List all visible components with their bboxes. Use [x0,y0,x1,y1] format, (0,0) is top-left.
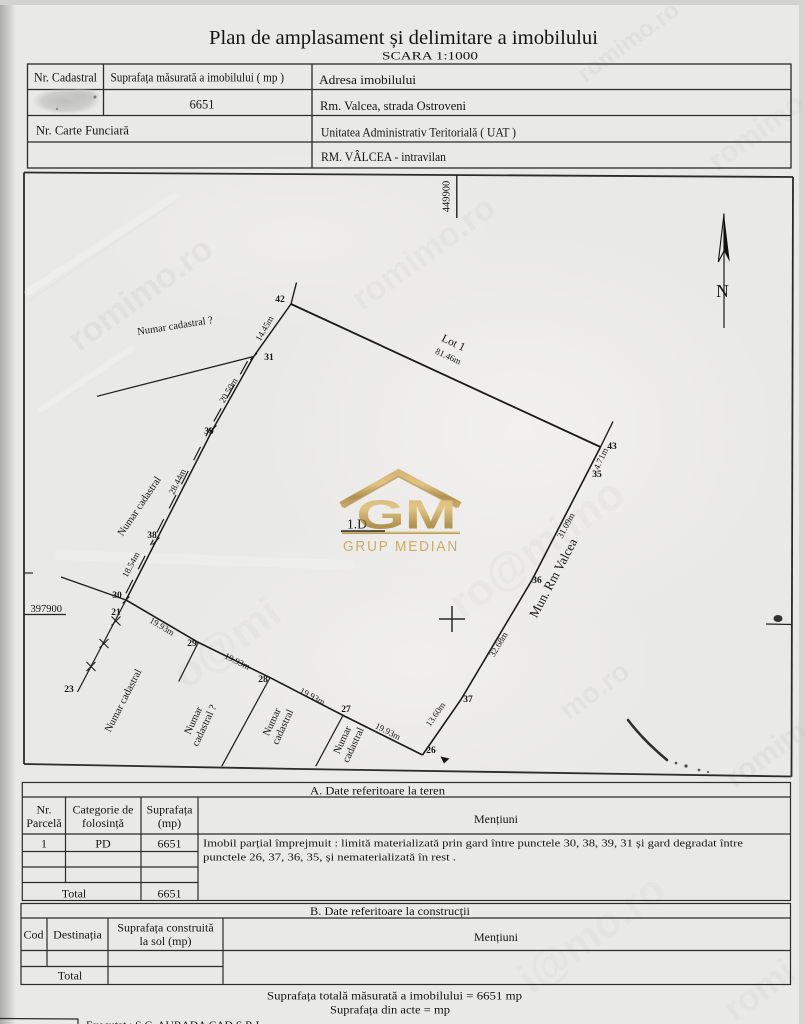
svg-text:Total: Total [58,969,83,983]
svg-text:39: 39 [204,427,214,437]
svg-text:A. Date referitoare la teren: A. Date referitoare la teren [310,784,445,798]
svg-text:26: 26 [426,746,436,756]
svg-text:PD: PD [95,837,111,851]
svg-text:6651: 6651 [158,837,182,851]
svg-text:Imobil parțial împrejmuit : li: Imobil parțial împrejmuit : limită mater… [203,838,743,850]
svg-text:Suprafața totală măsurată a im: Suprafața totală măsurată a imobilului =… [267,991,522,1003]
svg-text:Executat : S.C. AURADA CAD S.R: Executat : S.C. AURADA CAD S.R.L. [86,1020,266,1024]
svg-text:37: 37 [463,695,473,705]
svg-text:397900: 397900 [31,604,63,615]
svg-text:28: 28 [258,675,268,685]
svg-text:Suprafața măsurată a imobilulu: Suprafața măsurată a imobilului ( mp ) [111,71,285,85]
svg-text:folosință: folosință [82,816,125,830]
svg-text:Nr. Carte Funciară: Nr. Carte Funciară [36,124,129,138]
svg-text:6651: 6651 [158,887,182,901]
svg-text:GM: GM [356,492,456,538]
svg-text:Suprafața construită: Suprafața construită [117,921,214,935]
svg-text:30: 30 [112,591,122,601]
svg-text:29: 29 [187,639,197,649]
svg-text:Plan de amplasament și delimit: Plan de amplasament și delimitare a imob… [209,27,598,49]
svg-text:38: 38 [147,531,157,541]
svg-text:Rm. Valcea, strada Ostroveni: Rm. Valcea, strada Ostroveni [320,99,467,113]
svg-text:23: 23 [64,685,74,695]
svg-text:Suprafața din acte = mp: Suprafața din acte = mp [330,1005,450,1017]
svg-text:6651: 6651 [190,98,215,112]
svg-text:Destinația: Destinația [53,928,102,942]
svg-text:(mp): (mp) [158,816,181,830]
svg-text:Adresa imobilului: Adresa imobilului [319,73,417,87]
svg-text:Parcelă: Parcelă [26,816,62,830]
svg-text:Total: Total [62,887,87,901]
svg-text:35: 35 [592,470,602,480]
svg-text:42: 42 [275,295,285,305]
svg-text:B. Date referitoare la constru: B. Date referitoare la construcții [310,904,471,918]
svg-text:N: N [716,281,729,301]
svg-text:27: 27 [341,705,351,715]
svg-text:31: 31 [264,353,274,363]
svg-text:Mențiuni: Mențiuni [474,930,519,944]
svg-text:Cod: Cod [23,928,43,942]
svg-text:Nr.: Nr. [37,803,52,817]
svg-text:RM. VÂLCEA - intravilan: RM. VÂLCEA - intravilan [321,150,447,164]
svg-text:Suprafața: Suprafața [147,803,194,817]
svg-text:Categorie de: Categorie de [73,803,134,817]
svg-text:la sol (mp): la sol (mp) [140,934,192,948]
svg-text:Unitatea Administrativ Teritor: Unitatea Administrativ Teritorială ( UAT… [321,126,516,140]
svg-text:punctele 26, 37, 36, 35, și n: punctele 26, 37, 36, 35, și nematerializ… [203,852,456,864]
svg-text:1: 1 [41,837,47,851]
svg-text:449900: 449900 [442,181,453,213]
svg-text:GRUP MEDIAN: GRUP MEDIAN [343,538,459,555]
svg-text:21: 21 [111,608,121,618]
svg-text:Mențiuni: Mențiuni [474,812,519,826]
svg-text:Nr. Cadastral: Nr. Cadastral [34,71,97,85]
svg-text:SCARA 1:1000: SCARA 1:1000 [382,51,478,63]
